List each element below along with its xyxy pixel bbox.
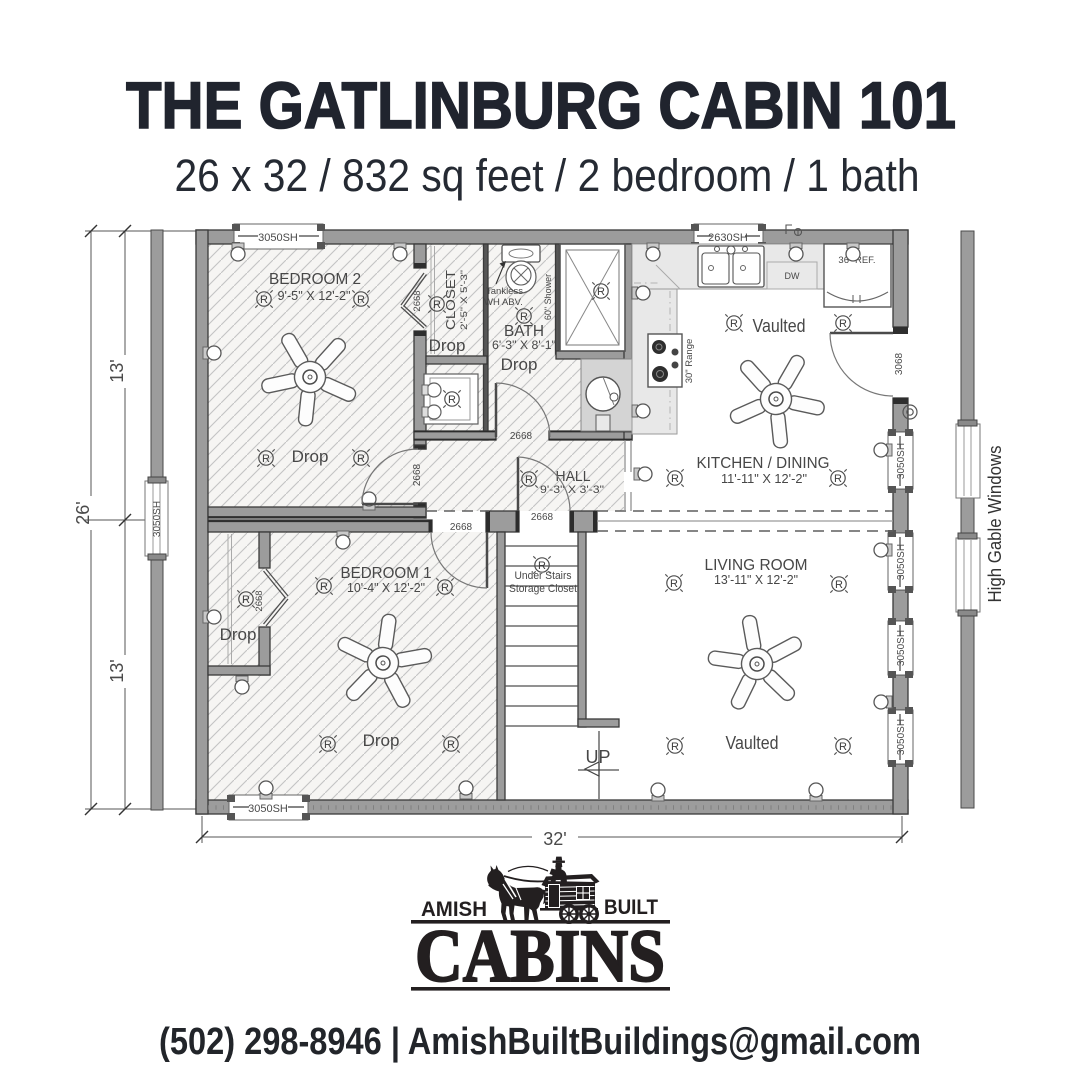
svg-text:9'-3" X 3'-3": 9'-3" X 3'-3" (540, 484, 604, 496)
svg-text:CLOSET: CLOSET (443, 270, 458, 330)
svg-text:Drop: Drop (501, 355, 538, 374)
svg-text:CABINS: CABINS (415, 915, 665, 998)
svg-text:3050SH: 3050SH (258, 232, 298, 244)
svg-text:32': 32' (543, 829, 566, 849)
svg-text:3050SH: 3050SH (896, 719, 907, 755)
svg-text:Storage Closet: Storage Closet (509, 583, 577, 595)
svg-text:Tankless: Tankless (486, 286, 523, 297)
svg-text:Drop: Drop (292, 447, 329, 466)
svg-text:2668: 2668 (254, 590, 265, 611)
svg-text:Drop: Drop (429, 336, 466, 355)
svg-text:Vaulted: Vaulted (753, 316, 806, 336)
svg-text:3050SH: 3050SH (896, 630, 907, 666)
svg-text:3050SH: 3050SH (896, 544, 907, 580)
svg-text:9'-5" X 12'-2": 9'-5" X 12'-2" (278, 288, 351, 303)
svg-text:2668: 2668 (412, 463, 423, 486)
svg-text:DW: DW (785, 271, 800, 281)
svg-text:3068: 3068 (894, 352, 905, 375)
svg-text:13': 13' (107, 359, 127, 382)
svg-text:BEDROOM 2: BEDROOM 2 (269, 271, 361, 288)
svg-text:(502) 298-8946 | AmishBuiltBui: (502) 298-8946 | AmishBuiltBuildings@gma… (159, 1021, 921, 1063)
svg-text:2630SH: 2630SH (708, 232, 748, 244)
svg-text:2668: 2668 (510, 431, 533, 442)
svg-text:WH ABV.: WH ABV. (484, 297, 523, 308)
svg-text:Vaulted: Vaulted (726, 733, 779, 753)
svg-text:2668: 2668 (531, 512, 554, 523)
svg-text:Drop: Drop (363, 731, 400, 750)
svg-text:Under Stairs: Under Stairs (515, 570, 572, 582)
svg-text:2668: 2668 (412, 290, 423, 311)
svg-text:2668: 2668 (450, 522, 473, 533)
svg-text:UP: UP (585, 747, 610, 767)
svg-text:6'-3" X 8'-1": 6'-3" X 8'-1" (492, 340, 556, 352)
svg-text:13'-11" X 12'-2": 13'-11" X 12'-2" (714, 572, 798, 587)
svg-text:10'-4" X 12'-2": 10'-4" X 12'-2" (347, 580, 425, 595)
svg-text:13': 13' (107, 659, 127, 682)
svg-text:3050SH: 3050SH (152, 501, 163, 537)
svg-text:26 x 32 / 832 sq feet / 2 bedr: 26 x 32 / 832 sq feet / 2 bedroom / 1 ba… (175, 150, 920, 201)
svg-text:26': 26' (73, 501, 93, 524)
svg-text:2'-5" X 5'-3": 2'-5" X 5'-3" (459, 270, 470, 330)
svg-text:HALL: HALL (556, 469, 591, 485)
svg-text:11'-11" X 12'-2": 11'-11" X 12'-2" (721, 471, 807, 486)
svg-text:High Gable Windows: High Gable Windows (985, 446, 1005, 603)
svg-text:3050SH: 3050SH (896, 443, 907, 479)
svg-text:Drop: Drop (220, 625, 257, 644)
svg-text:3050SH: 3050SH (248, 803, 288, 815)
svg-text:KITCHEN / DINING: KITCHEN / DINING (697, 455, 830, 472)
svg-text:30" Range: 30" Range (684, 339, 695, 384)
svg-text:60" Shower: 60" Shower (543, 274, 553, 320)
svg-text:THE GATLINBURG CABIN 101: THE GATLINBURG CABIN 101 (126, 68, 956, 142)
svg-text:BATH: BATH (504, 323, 544, 340)
